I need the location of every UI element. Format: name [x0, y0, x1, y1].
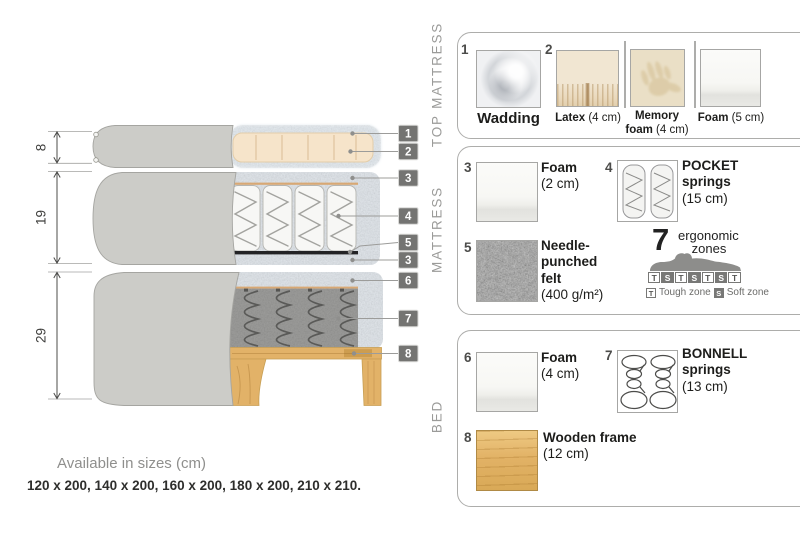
zone-box: T	[702, 272, 714, 284]
zone-box: T	[675, 272, 687, 284]
section-title-bed: BED	[430, 347, 445, 487]
item-number: 8	[464, 430, 472, 445]
bonnell-springs-label: BONNELL springs (13 cm)	[682, 346, 747, 395]
item-number: 1	[461, 42, 469, 57]
dimension-values: 8 19 29	[34, 144, 49, 343]
zone-legend: T Tough zone S Soft zone	[643, 287, 769, 298]
ergonomic-zones-row: T S T S T S T	[648, 272, 742, 284]
foam-2cm-image	[476, 162, 538, 222]
cover-button	[94, 132, 99, 137]
callout-badge: 2	[399, 143, 419, 160]
svg-text:2: 2	[405, 147, 411, 159]
memory-foam-image	[630, 49, 685, 107]
svg-text:6: 6	[405, 276, 411, 288]
callout-badge: 3	[399, 252, 419, 269]
callout-badge: 6	[399, 272, 419, 289]
svg-text:8: 8	[34, 144, 49, 152]
callout-badge: 3	[399, 170, 419, 187]
callout-badge: 7	[399, 310, 419, 327]
svg-text:29: 29	[34, 328, 49, 343]
foam-4cm-label: Foam (4 cm)	[541, 350, 579, 383]
pocket-springs-label: POCKET springs (15 cm)	[682, 158, 738, 207]
wood-frame-label: Wooden frame (12 cm)	[543, 430, 637, 463]
needle-felt-shape	[229, 251, 358, 254]
svg-text:1: 1	[405, 129, 412, 141]
fabric-cover-top	[93, 126, 233, 168]
callout-badge: 5	[399, 234, 419, 251]
svg-text:4: 4	[405, 211, 412, 223]
cover-button	[94, 158, 99, 163]
item-number: 4	[605, 160, 613, 175]
section-title-top-mattress: TOP MATTRESS	[430, 15, 445, 155]
zone-box: S	[661, 272, 673, 284]
dimension-markers	[48, 132, 92, 400]
svg-text:3: 3	[405, 255, 411, 267]
item-number: 7	[605, 348, 613, 363]
bonnell-springs-icon	[618, 351, 678, 413]
svg-text:19: 19	[34, 210, 49, 225]
item-number: 5	[464, 240, 472, 255]
wooden-leg-right	[362, 359, 381, 406]
wooden-leg-left	[229, 359, 266, 406]
option-divider	[694, 41, 696, 108]
callout-badge: 1	[399, 125, 419, 142]
pocket-springs-icon	[618, 161, 678, 222]
svg-text:3: 3	[405, 173, 411, 185]
body-silhouette-icon	[648, 251, 743, 272]
latex-blocks-shape	[233, 133, 373, 162]
bed-construction-infographic: 1 2 3 4 5 3 6 7 8 8 19 29	[0, 0, 800, 533]
available-sizes-list: 120 x 200, 140 x 200, 160 x 200, 180 x 2…	[27, 478, 361, 493]
layer-mattress	[93, 172, 380, 265]
latex-label: Latex (4 cm)	[548, 112, 628, 126]
available-sizes-title: Available in sizes (cm)	[57, 455, 206, 472]
foam-2cm-label: Foam (2 cm)	[541, 160, 579, 193]
wood-frame-image	[476, 430, 538, 491]
zone-box: T	[648, 272, 660, 284]
foam-5cm-image	[700, 49, 761, 107]
foam-4cm-image	[476, 352, 538, 412]
fabric-cover-bottom	[94, 273, 239, 406]
option-divider	[624, 41, 626, 108]
wadding-image	[476, 50, 541, 108]
svg-text:8: 8	[405, 349, 412, 361]
needle-felt-label: Needle- punched felt (400 g/m²)	[541, 238, 603, 304]
item-number: 3	[464, 160, 472, 175]
soft-zone-label: Soft zone	[727, 287, 769, 298]
felt-texture	[477, 241, 537, 301]
bonnell-springs-image	[617, 350, 678, 413]
memory-foam-label: Memory foam (4 cm)	[617, 110, 697, 137]
svg-text:7: 7	[405, 314, 411, 326]
needle-felt-image	[476, 240, 538, 302]
bed-cross-section-diagram: 1 2 3 4 5 3 6 7 8 8 19 29	[0, 0, 455, 533]
tough-zone-key-icon: T	[646, 288, 656, 298]
item-number: 2	[545, 42, 553, 57]
svg-text:5: 5	[405, 238, 412, 250]
soft-zone-key-icon: S	[714, 288, 724, 298]
layer-bed	[94, 272, 383, 406]
tough-zone-label: Tough zone	[659, 287, 711, 298]
pocket-springs-image	[617, 160, 678, 222]
section-title-mattress: MATTRESS	[430, 160, 445, 300]
item-number: 6	[464, 350, 472, 365]
zone-box: S	[715, 272, 727, 284]
layer-top-mattress	[93, 125, 381, 168]
hand-imprint-icon	[631, 50, 685, 107]
zone-box: S	[688, 272, 700, 284]
foam-5cm-label: Foam (5 cm)	[691, 112, 771, 126]
latex-image	[556, 50, 619, 107]
zone-box: T	[728, 272, 740, 284]
wadding-label: Wadding	[466, 110, 551, 128]
fabric-cover-middle	[93, 173, 236, 265]
callout-badges: 1 2 3 4 5 3 6 7 8	[399, 125, 419, 362]
callout-badge: 8	[399, 345, 419, 362]
callout-badge: 4	[399, 208, 419, 225]
